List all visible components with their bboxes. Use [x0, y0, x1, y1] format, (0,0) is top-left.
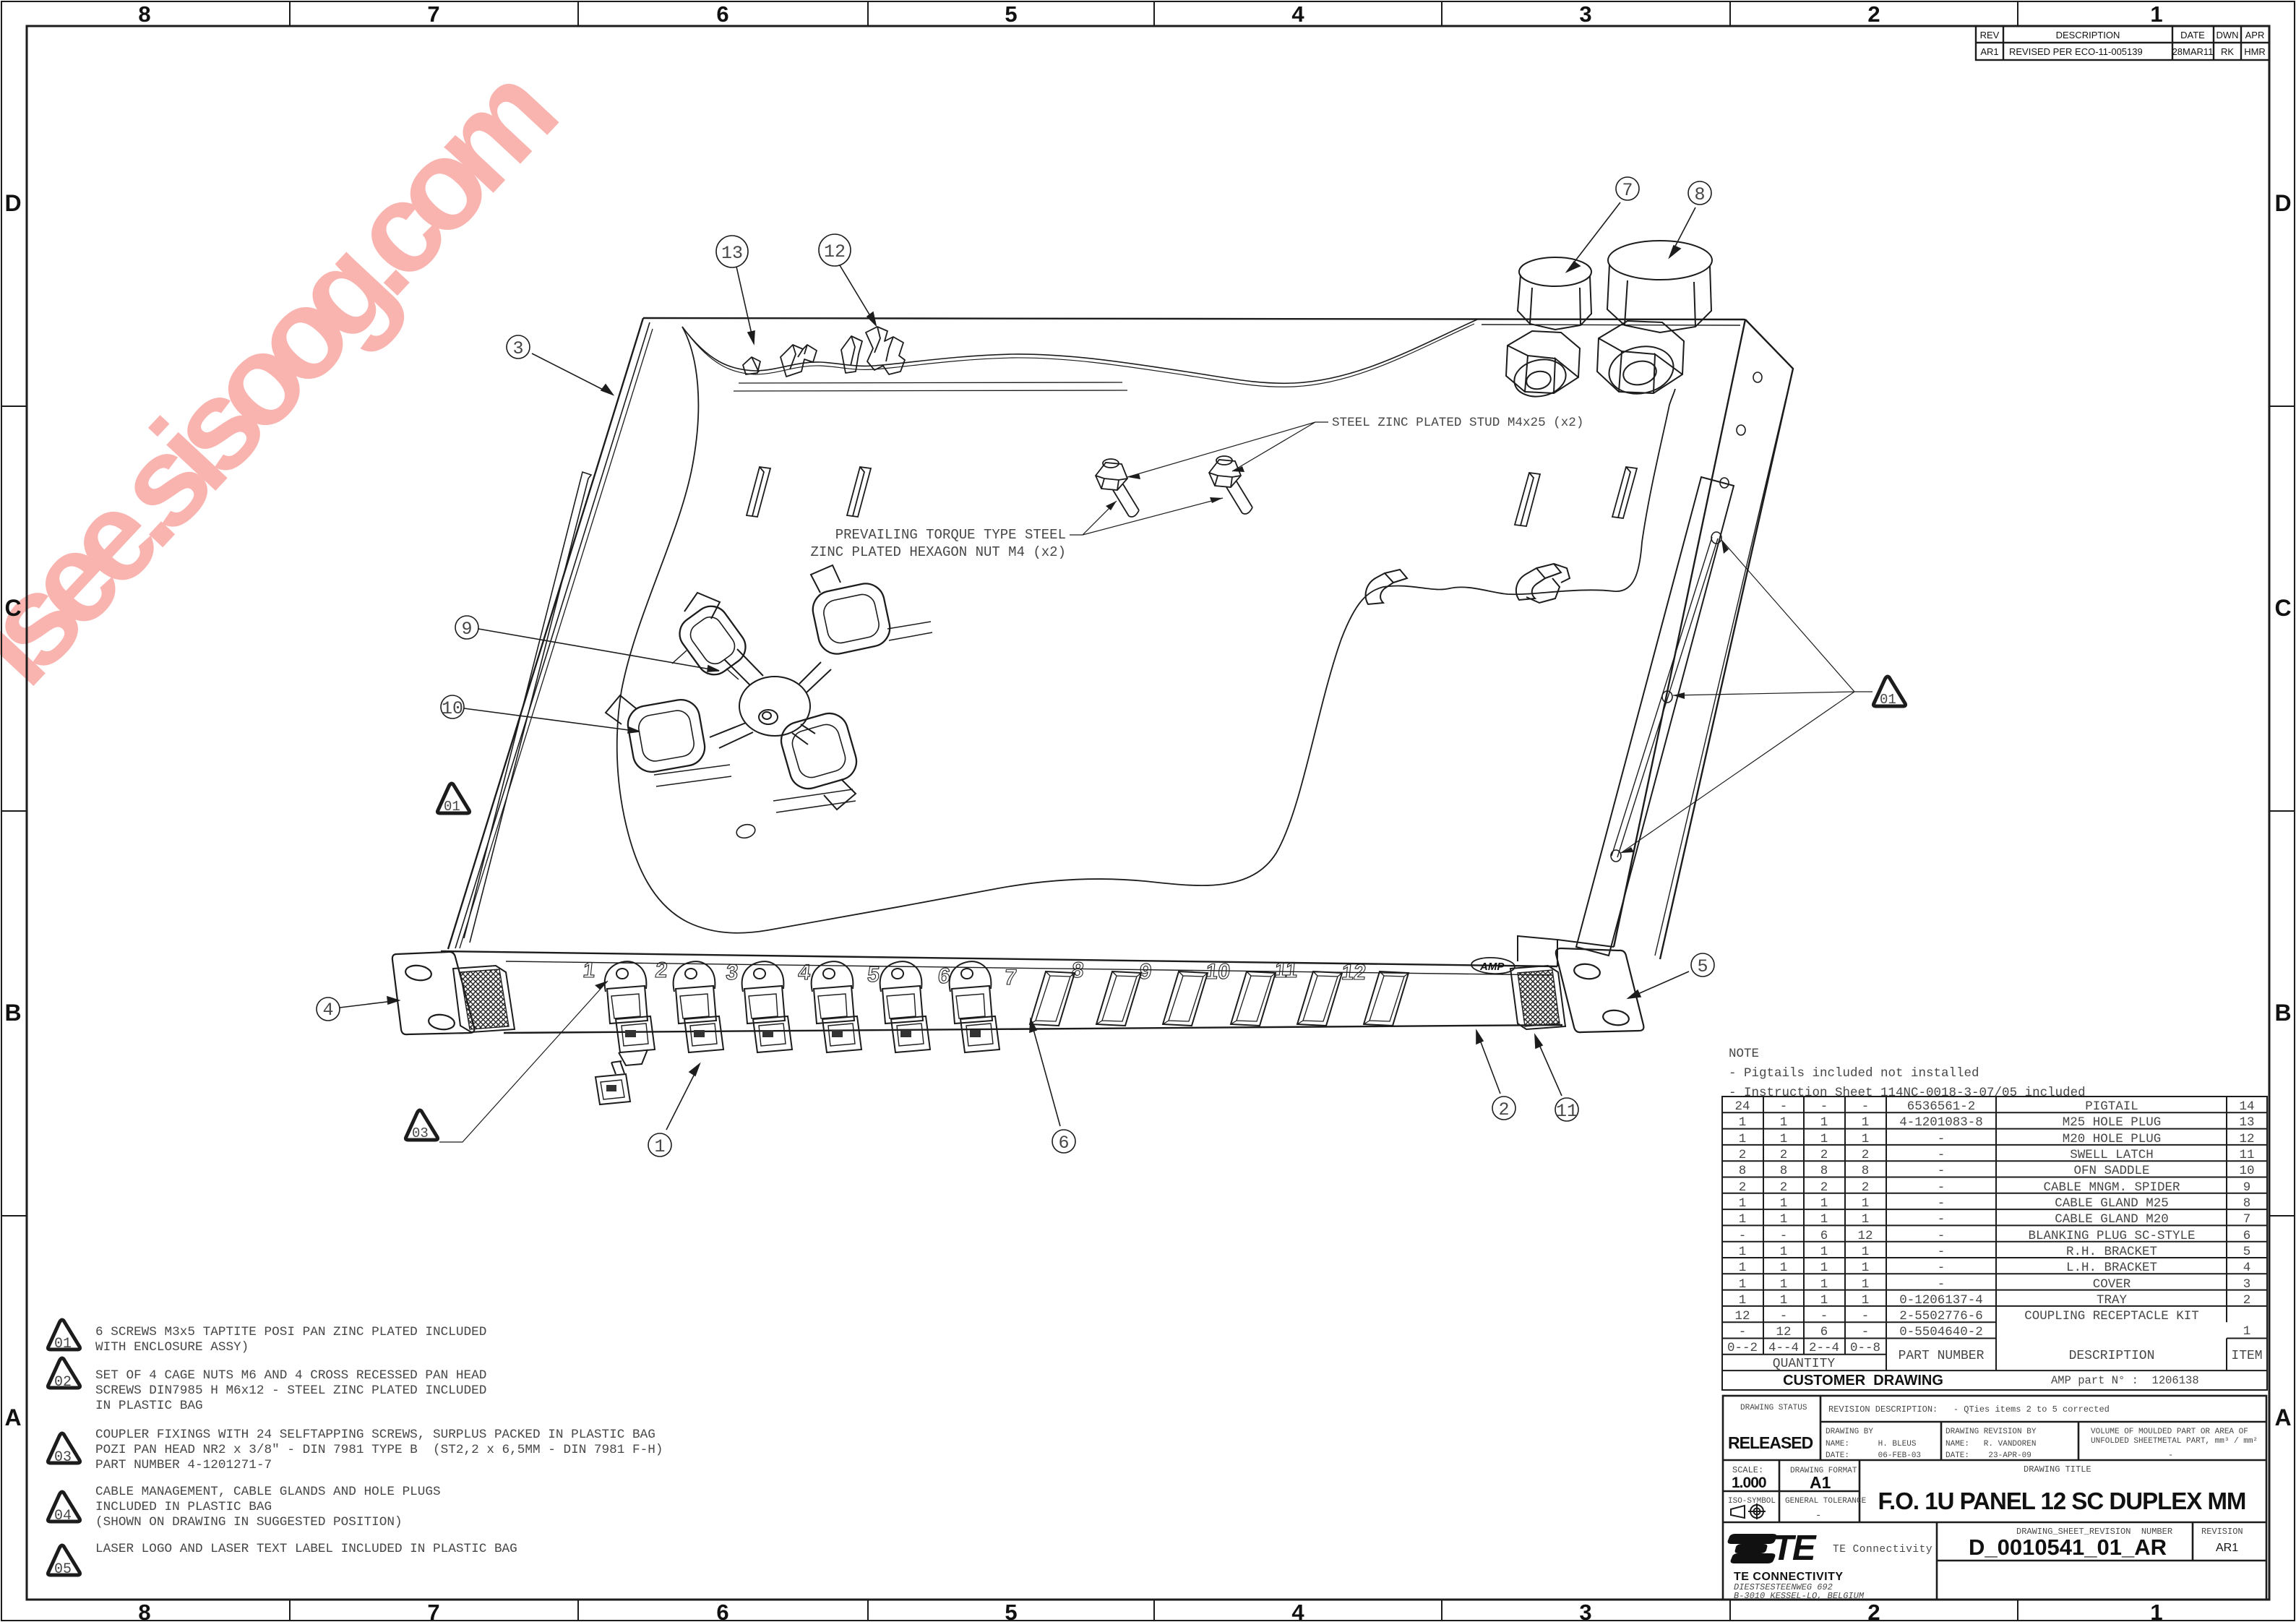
svg-text:SCREWS DIN7985 H M6x12 - STEEL: SCREWS DIN7985 H M6x12 - STEEL ZINC PLAT…	[95, 1383, 486, 1398]
svg-text:1: 1	[1862, 1115, 1870, 1130]
svg-text:C: C	[4, 595, 21, 621]
svg-text:1: 1	[1862, 1277, 1870, 1292]
svg-text:2: 2	[1739, 1180, 1747, 1195]
svg-text:1: 1	[1862, 1132, 1870, 1146]
svg-text:4: 4	[2243, 1261, 2251, 1275]
svg-text:0-5504640-2: 0-5504640-2	[1899, 1325, 1983, 1339]
svg-text:AR1: AR1	[2216, 1542, 2238, 1554]
svg-text:1: 1	[1739, 1277, 1747, 1292]
svg-text:REV: REV	[1980, 30, 2000, 40]
svg-text:4: 4	[322, 1000, 333, 1021]
svg-text:PART NUMBER: PART NUMBER	[1899, 1349, 1985, 1363]
svg-text:POZI PAN HEAD NR2 x 3/8" - DIN: POZI PAN HEAD NR2 x 3/8" - DIN 7981 TYPE…	[95, 1443, 663, 1457]
svg-text:1: 1	[1780, 1196, 1788, 1211]
svg-text:WITH ENCLOSURE ASSY): WITH ENCLOSURE ASSY)	[95, 1340, 249, 1355]
svg-text:01: 01	[1880, 692, 1896, 708]
svg-text:01: 01	[444, 799, 460, 815]
svg-text:6: 6	[2243, 1229, 2251, 1243]
svg-text:BLANKING PLUG SC-STYLE: BLANKING PLUG SC-STYLE	[2028, 1229, 2195, 1243]
svg-text:6536561-2: 6536561-2	[1907, 1099, 1976, 1114]
svg-text:DESCRIPTION: DESCRIPTION	[2056, 30, 2120, 40]
svg-text:1: 1	[1862, 1212, 1870, 1227]
svg-text:8: 8	[2243, 1196, 2251, 1211]
svg-text:IN PLASTIC BAG: IN PLASTIC BAG	[95, 1399, 203, 1413]
svg-text:1: 1	[1820, 1212, 1828, 1227]
svg-text:6: 6	[937, 964, 951, 988]
svg-text:DATE: DATE	[2180, 30, 2205, 40]
svg-text:-: -	[1938, 1229, 1945, 1243]
svg-text:12: 12	[2239, 1132, 2254, 1146]
svg-text:QUANTITY: QUANTITY	[1773, 1357, 1836, 1371]
svg-text:TE Connectivity: TE Connectivity	[1833, 1544, 1932, 1556]
svg-text:12: 12	[1341, 961, 1367, 984]
svg-text:PIGTAIL: PIGTAIL	[2085, 1099, 2138, 1114]
svg-text:-: -	[1938, 1261, 1945, 1275]
svg-text:28MAR11: 28MAR11	[2172, 46, 2214, 57]
svg-text:3: 3	[1579, 1, 1591, 27]
svg-text:SWELL LATCH: SWELL LATCH	[2070, 1148, 2154, 1162]
svg-text:12: 12	[1776, 1325, 1791, 1339]
svg-text:SCALE:: SCALE:	[1732, 1465, 1763, 1475]
svg-text:OFN SADDLE: OFN SADDLE	[2073, 1164, 2149, 1178]
svg-text:1: 1	[1739, 1115, 1747, 1130]
svg-text:9: 9	[461, 619, 472, 640]
svg-text:1.000: 1.000	[1732, 1475, 1766, 1491]
svg-text:8: 8	[1694, 184, 1705, 205]
svg-text:AMP part N° : 1206138: AMP part N° : 1206138	[2051, 1374, 2199, 1387]
svg-text:8: 8	[1739, 1164, 1747, 1178]
svg-text:13: 13	[2239, 1115, 2254, 1130]
svg-text:CABLE GLAND M20: CABLE GLAND M20	[2055, 1212, 2169, 1227]
svg-text:3: 3	[2243, 1277, 2251, 1292]
svg-text:- Instruction Sheet 114NC-0018: - Instruction Sheet 114NC-0018-3-07/05 i…	[1729, 1086, 2086, 1100]
svg-text:2: 2	[1862, 1148, 1870, 1162]
svg-text:DWN: DWN	[2216, 30, 2238, 40]
svg-text:02: 02	[54, 1374, 72, 1391]
svg-text:10: 10	[2239, 1164, 2254, 1178]
svg-text:8: 8	[138, 1, 150, 27]
svg-text:1: 1	[1739, 1245, 1747, 1259]
svg-text:DATE: 06-FEB-03: DATE: 06-FEB-03	[1826, 1451, 1921, 1460]
svg-text:LASER LOGO AND LASER TEXT LABE: LASER LOGO AND LASER TEXT LABEL INCLUDED…	[95, 1542, 517, 1556]
svg-text:2: 2	[1862, 1180, 1870, 1195]
svg-text:2: 2	[2243, 1293, 2251, 1308]
svg-text:14: 14	[2239, 1099, 2254, 1114]
svg-text:D_0010541_01_AR: D_0010541_01_AR	[1969, 1535, 2167, 1560]
svg-text:5: 5	[2243, 1245, 2251, 1259]
svg-text:TRAY: TRAY	[2097, 1293, 2128, 1308]
svg-text:5: 5	[867, 963, 881, 987]
svg-text:05: 05	[54, 1561, 72, 1578]
svg-text:7: 7	[1003, 966, 1018, 990]
svg-text:1: 1	[1862, 1261, 1870, 1275]
svg-text:1: 1	[1780, 1261, 1788, 1275]
svg-text:-: -	[1739, 1229, 1747, 1243]
svg-text:11: 11	[2239, 1148, 2254, 1162]
svg-text:-: -	[1938, 1212, 1945, 1227]
svg-text:-: -	[1862, 1099, 1870, 1114]
svg-text:(SHOWN ON DRAWING IN SUGGESTED: (SHOWN ON DRAWING IN SUGGESTED POSITION)	[95, 1515, 403, 1529]
svg-text:1: 1	[654, 1136, 665, 1157]
svg-text:9: 9	[2243, 1180, 2251, 1195]
svg-text:ITEM: ITEM	[2231, 1349, 2262, 1363]
svg-text:1: 1	[1820, 1293, 1828, 1308]
svg-text:6: 6	[1820, 1229, 1828, 1243]
svg-text:6 SCREWS M3x5 TAPTITE POSI PAN: 6 SCREWS M3x5 TAPTITE POSI PAN ZINC PLAT…	[95, 1325, 486, 1339]
svg-text:COUPLING RECEPTACLE KIT: COUPLING RECEPTACLE KIT	[2024, 1309, 2199, 1323]
svg-text:DATE: 23-APR-09: DATE: 23-APR-09	[1945, 1451, 2031, 1460]
svg-text:REVISION: REVISION	[2201, 1527, 2243, 1537]
svg-text:REVISED PER ECO-11-005139: REVISED PER ECO-11-005139	[2009, 46, 2143, 57]
svg-text:D: D	[2274, 190, 2291, 216]
svg-text:INCLUDED IN PLASTIC BAG: INCLUDED IN PLASTIC BAG	[95, 1500, 272, 1514]
svg-text:4-1201083-8: 4-1201083-8	[1899, 1115, 1983, 1130]
svg-text:AR1: AR1	[1980, 46, 1998, 57]
svg-text:COUPLER FIXINGS WITH 24 SELFTA: COUPLER FIXINGS WITH 24 SELFTAPPING SCRE…	[95, 1428, 655, 1442]
svg-text:GENERAL TOLERANCE: GENERAL TOLERANCE	[1785, 1497, 1867, 1506]
svg-text:24: 24	[1734, 1099, 1750, 1114]
svg-text:1: 1	[2243, 1324, 2251, 1339]
svg-text:ISO-SYMBOL: ISO-SYMBOL	[1728, 1497, 1776, 1506]
svg-text:-: -	[1862, 1309, 1870, 1323]
svg-text:1: 1	[1739, 1212, 1747, 1227]
svg-text:1: 1	[1739, 1261, 1747, 1275]
svg-text:7: 7	[1622, 180, 1633, 201]
svg-text:1: 1	[1820, 1277, 1828, 1292]
svg-text:- Pigtails included not instal: - Pigtails included not installed	[1729, 1066, 1979, 1081]
svg-text:NAME: H. BLEUS: NAME: H. BLEUS	[1826, 1440, 1917, 1449]
svg-text:2: 2	[1498, 1099, 1509, 1120]
svg-text:DRAWING BY: DRAWING BY	[1826, 1428, 1873, 1436]
svg-text:-: -	[1938, 1180, 1945, 1195]
svg-text:4--4: 4--4	[1768, 1341, 1799, 1355]
svg-text:2: 2	[1820, 1180, 1828, 1195]
svg-text:1: 1	[1780, 1293, 1788, 1308]
svg-text:6: 6	[1820, 1325, 1828, 1339]
svg-text:DRAWING TITLE: DRAWING TITLE	[2024, 1464, 2091, 1475]
svg-text:CABLE MNGM. SPIDER: CABLE MNGM. SPIDER	[2043, 1180, 2180, 1195]
svg-text:5: 5	[1005, 1, 1017, 27]
svg-text:AMP: AMP	[1479, 961, 1505, 973]
svg-text:1: 1	[1739, 1132, 1747, 1146]
svg-text:-: -	[1780, 1309, 1788, 1323]
svg-text:-: -	[1938, 1132, 1945, 1146]
svg-text:B: B	[4, 1000, 21, 1026]
svg-text:TE CONNECTIVITY: TE CONNECTIVITY	[1734, 1571, 1844, 1583]
svg-text:ZINC PLATED HEXAGON NUT M4 (x2: ZINC PLATED HEXAGON NUT M4 (x2)	[811, 544, 1066, 560]
svg-text:1: 1	[1820, 1132, 1828, 1146]
svg-text:RELEASED: RELEASED	[1728, 1433, 1813, 1452]
svg-text:12: 12	[1734, 1309, 1750, 1323]
svg-text:4: 4	[1291, 1600, 1304, 1622]
svg-text:M25 HOLE PLUG: M25 HOLE PLUG	[2063, 1115, 2162, 1130]
svg-text:APR: APR	[2245, 30, 2265, 40]
svg-text:8: 8	[138, 1600, 150, 1622]
svg-text:D: D	[4, 190, 21, 216]
svg-text:7: 7	[427, 1600, 439, 1622]
svg-text:2: 2	[654, 958, 668, 982]
svg-text:7: 7	[2243, 1212, 2251, 1227]
svg-text:03: 03	[412, 1125, 429, 1141]
svg-text:10: 10	[1205, 960, 1231, 984]
svg-text:2: 2	[1739, 1148, 1747, 1162]
svg-text:NAME: R. VANDOREN: NAME: R. VANDOREN	[1945, 1440, 2036, 1449]
svg-text:1: 1	[1820, 1196, 1828, 1211]
svg-text:6: 6	[716, 1, 728, 27]
svg-text:1: 1	[1862, 1196, 1870, 1211]
svg-text:1: 1	[1820, 1115, 1828, 1130]
svg-text:1: 1	[582, 958, 596, 982]
svg-text:-: -	[2168, 1450, 2173, 1460]
svg-text:-: -	[1815, 1510, 1821, 1522]
svg-text:1: 1	[1780, 1132, 1788, 1146]
svg-text:1: 1	[1862, 1245, 1870, 1259]
svg-text:2: 2	[1780, 1148, 1788, 1162]
svg-text:B: B	[2274, 1000, 2291, 1026]
svg-text:R.H. BRACKET: R.H. BRACKET	[2066, 1245, 2157, 1259]
svg-text:C: C	[2274, 595, 2291, 621]
svg-text:5: 5	[1005, 1600, 1017, 1622]
svg-text:-: -	[1938, 1245, 1945, 1259]
svg-text:HMR: HMR	[2244, 46, 2266, 57]
svg-text:SET OF 4 CAGE NUTS M6 AND 4 CR: SET OF 4 CAGE NUTS M6 AND 4 CROSS RECESS…	[95, 1368, 486, 1383]
svg-text:1: 1	[1780, 1277, 1788, 1292]
svg-text:3: 3	[1579, 1600, 1591, 1622]
svg-text:2: 2	[1780, 1180, 1788, 1195]
svg-text:12: 12	[824, 241, 846, 262]
svg-text:DRAWING REVISION BY: DRAWING REVISION BY	[1945, 1428, 2037, 1436]
svg-text:NOTE: NOTE	[1729, 1047, 1759, 1061]
svg-text:3: 3	[512, 338, 523, 359]
svg-text:DRAWING STATUS: DRAWING STATUS	[1740, 1404, 1807, 1412]
svg-text:0--8: 0--8	[1850, 1341, 1880, 1355]
svg-text:1: 1	[1739, 1293, 1747, 1308]
svg-text:-: -	[1938, 1196, 1945, 1211]
svg-text:M20 HOLE PLUG: M20 HOLE PLUG	[2063, 1132, 2162, 1146]
svg-text:1: 1	[1862, 1293, 1870, 1308]
svg-text:VOLUME OF MOULDED PART OR AREA: VOLUME OF MOULDED PART OR AREA OF	[2091, 1428, 2248, 1436]
svg-text:3: 3	[725, 961, 739, 984]
svg-text:04: 04	[54, 1508, 72, 1524]
svg-text:5: 5	[1697, 956, 1708, 977]
svg-text:L.H. BRACKET: L.H. BRACKET	[2066, 1261, 2157, 1275]
svg-text:-: -	[1938, 1148, 1945, 1162]
svg-text:13: 13	[721, 243, 743, 264]
svg-text:-: -	[1780, 1229, 1788, 1243]
svg-text:2: 2	[1867, 1600, 1880, 1622]
svg-text:01: 01	[54, 1336, 72, 1352]
svg-text:12: 12	[1857, 1229, 1873, 1243]
svg-text:8: 8	[1780, 1164, 1788, 1178]
svg-text:03: 03	[54, 1449, 72, 1466]
svg-text:9: 9	[1138, 960, 1153, 984]
svg-text:COVER: COVER	[2093, 1277, 2131, 1292]
svg-text:PART NUMBER 4-1201271-7: PART NUMBER 4-1201271-7	[95, 1458, 272, 1472]
svg-text:11: 11	[1556, 1101, 1578, 1122]
svg-text:1: 1	[1780, 1115, 1788, 1130]
svg-text:2-5502776-6: 2-5502776-6	[1899, 1309, 1983, 1323]
svg-text:CUSTOMER DRAWING: CUSTOMER DRAWING	[1783, 1373, 1943, 1389]
svg-text:DESCRIPTION: DESCRIPTION	[2069, 1349, 2155, 1363]
svg-text:4: 4	[1291, 1, 1304, 27]
svg-text:A: A	[2274, 1404, 2291, 1430]
svg-text:0-1206137-4: 0-1206137-4	[1899, 1293, 1983, 1308]
svg-text:8: 8	[1862, 1164, 1870, 1178]
svg-text:CABLE GLAND M25: CABLE GLAND M25	[2055, 1196, 2169, 1211]
svg-text:11: 11	[1273, 958, 1299, 982]
svg-text:6: 6	[716, 1600, 728, 1622]
svg-text:-: -	[1820, 1309, 1828, 1323]
svg-text:1: 1	[2150, 1600, 2162, 1622]
svg-text:UNFOLDED SHEETMETAL PART, mm³: UNFOLDED SHEETMETAL PART, mm³ / mm²	[2091, 1437, 2258, 1446]
svg-text:-: -	[1739, 1325, 1747, 1339]
svg-text:B-3010 KESSEL-LO, BELGIUM: B-3010 KESSEL-LO, BELGIUM	[1734, 1591, 1865, 1601]
svg-text:-: -	[1938, 1164, 1945, 1178]
svg-text:-: -	[1938, 1277, 1945, 1292]
svg-text:-: -	[1780, 1099, 1788, 1114]
svg-text:STEEL ZINC PLATED STUD M4x25 (: STEEL ZINC PLATED STUD M4x25 (x2)	[1332, 416, 1583, 430]
svg-text:A: A	[4, 1404, 21, 1430]
svg-text:7: 7	[427, 1, 439, 27]
svg-text:-: -	[1862, 1325, 1870, 1339]
svg-text:2: 2	[1820, 1148, 1828, 1162]
svg-text:PREVAILING TORQUE TYPE STEEL: PREVAILING TORQUE TYPE STEEL	[835, 527, 1066, 543]
svg-text:-: -	[1820, 1099, 1828, 1114]
svg-text:1: 1	[1820, 1261, 1828, 1275]
svg-text:F.O. 1U PANEL 12 SC DUPLEX MM: F.O. 1U PANEL 12 SC DUPLEX MM	[1878, 1488, 2246, 1514]
svg-text:REVISION DESCRIPTION: - QTie: REVISION DESCRIPTION: - QTies items 2 to…	[1828, 1404, 2110, 1415]
svg-text:CABLE MANAGEMENT, CABLE GLANDS: CABLE MANAGEMENT, CABLE GLANDS AND HOLE …	[95, 1485, 441, 1499]
svg-text:1: 1	[2150, 1, 2162, 27]
svg-text:2--4: 2--4	[1809, 1341, 1839, 1355]
svg-text:8: 8	[1820, 1164, 1828, 1178]
svg-text:1: 1	[1739, 1196, 1747, 1211]
svg-text:TE: TE	[1772, 1529, 1817, 1568]
svg-text:A1: A1	[1810, 1473, 1831, 1492]
svg-text:2: 2	[1867, 1, 1880, 27]
svg-text:10: 10	[442, 698, 463, 719]
svg-text:RK: RK	[2221, 46, 2234, 57]
svg-text:6: 6	[1058, 1133, 1069, 1154]
svg-text:1: 1	[1780, 1212, 1788, 1227]
svg-text:1: 1	[1780, 1245, 1788, 1259]
svg-text:0--2: 0--2	[1727, 1341, 1758, 1355]
svg-text:1: 1	[1820, 1245, 1828, 1259]
